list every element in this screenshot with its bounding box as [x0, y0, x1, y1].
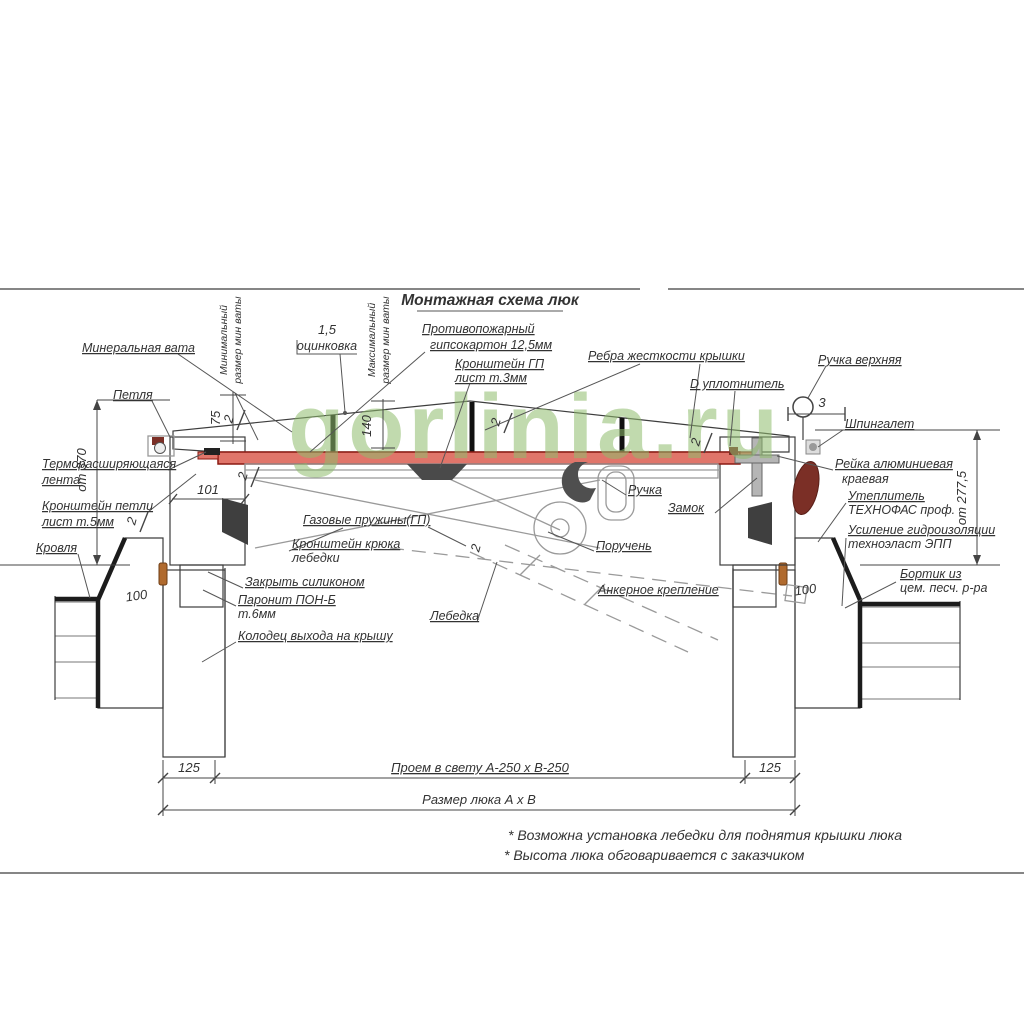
svg-text:цем. песч. р-ра: цем. песч. р-ра	[900, 581, 987, 595]
label-winch-bracket: Кронштейн крюка	[292, 537, 400, 551]
left-curb-membrane	[98, 538, 125, 708]
svg-text:размер мин ваты: размер мин ваты	[232, 296, 244, 385]
right-curb-membrane	[833, 538, 860, 708]
right-gravel-layer	[860, 607, 960, 643]
dim-140: 140	[359, 414, 374, 436]
label-lock: Замок	[668, 501, 705, 515]
dim-125-right: 125	[759, 760, 781, 775]
left-anchor-pin	[159, 563, 167, 585]
svg-text:2: 2	[123, 515, 140, 528]
hatch-installation-drawing: gorlinia.ru от 370 от 277,5 75 140 101	[0, 0, 1024, 1024]
right-screed-layer	[860, 643, 960, 667]
left-gravel-layer	[55, 602, 98, 636]
label-roofing: Кровля	[36, 541, 77, 555]
svg-text:краевая: краевая	[842, 472, 889, 486]
svg-text:лента: лента	[41, 473, 80, 487]
label-handrail: Поручень	[596, 539, 652, 553]
notes: * Возможна установка лебедки для подняти…	[504, 827, 902, 863]
left-slab	[55, 662, 98, 698]
pulley	[534, 502, 586, 554]
dim-hatch-size: Размер люка А х В	[422, 792, 536, 807]
label-insulation: Утеплитель	[847, 489, 925, 503]
anchor-beam	[390, 548, 792, 596]
label-waterproofing: Усиление гидроизоляции	[847, 523, 995, 537]
note-2: * Высота люка обговаривается с заказчико…	[504, 847, 805, 863]
svg-text:т.6мм: т.6мм	[238, 607, 276, 621]
label-hinge: Петля	[113, 388, 153, 402]
left-curb	[98, 538, 163, 708]
grip-handle	[789, 459, 824, 517]
label-min-wool: Минимальный	[218, 305, 230, 375]
right-slab	[860, 667, 960, 699]
label-thermo-tape: Терморасширяющаяся	[42, 457, 177, 471]
label-handle-top: Ручка верхняя	[818, 353, 902, 367]
dim-clear-opening: Проем в свету А-250 х В-250	[391, 760, 569, 775]
label-rail: Рейка алюминиевая	[835, 457, 953, 471]
dim-100-right: 100	[794, 581, 818, 599]
svg-text:гипсокартон 12,5мм: гипсокартон 12,5мм	[430, 338, 552, 352]
svg-text:2: 2	[234, 470, 251, 483]
svg-text:ТЕХНОФАС проф.: ТЕХНОФАС проф.	[848, 503, 955, 517]
label-galvanized: оцинковка	[297, 339, 357, 353]
label-bracket-gp: Кронштейн ГП	[455, 357, 545, 371]
svg-text:размер мин ваты: размер мин ваты	[380, 296, 392, 385]
svg-text:лист т.3мм: лист т.3мм	[454, 371, 527, 385]
label-silicone: Закрыть силиконом	[245, 575, 365, 589]
label-hinge-bracket: Кронштейн петли	[42, 499, 153, 513]
dim-100-left: 100	[125, 587, 149, 605]
label-latch: Шпингалет	[845, 417, 914, 431]
right-frame-bracket	[748, 502, 772, 545]
right-frame-tongue	[733, 565, 776, 607]
label-fireproof: Противопожарный	[422, 322, 535, 336]
dim-125-left: 125	[178, 760, 200, 775]
label-max-wool: Максимальный	[366, 303, 378, 378]
label-mineral-wool: Минеральная вата	[82, 341, 195, 355]
svg-text:лист т.5мм: лист т.5мм	[41, 515, 114, 529]
label-handle: Ручка	[628, 483, 662, 497]
dim-3: 3	[818, 395, 826, 410]
dim-right-height: от 277,5	[954, 470, 969, 525]
svg-text:лебедки: лебедки	[291, 551, 340, 565]
svg-text:2: 2	[467, 542, 484, 555]
label-anchor: Анкерное крепление	[597, 583, 719, 597]
dim-101: 101	[197, 482, 219, 497]
ladder	[470, 552, 688, 652]
label-well: Колодец выхода на крышу	[238, 629, 393, 643]
right-curb	[795, 538, 860, 708]
left-well-wall	[163, 570, 225, 757]
label-paronite: Паронит ПОН-Б	[238, 593, 336, 607]
technical-drawing-page: gorlinia.ru от 370 от 277,5 75 140 101	[0, 0, 1024, 1024]
label-gas-springs: Газовые пружины(ГП)	[303, 513, 430, 527]
label-curb: Бортик из	[900, 567, 962, 581]
right-anchor-pin	[779, 563, 787, 585]
drawing-title: Монтажная схема люк	[401, 292, 580, 309]
left-frame-bracket	[222, 498, 248, 545]
label-ribs: Ребра жесткости крышки	[588, 349, 745, 363]
note-1: * Возможна установка лебедки для подняти…	[508, 827, 902, 843]
svg-text:техноэласт ЭПП: техноэласт ЭПП	[848, 537, 952, 551]
left-screed-layer	[55, 636, 98, 662]
label-winch: Лебедка	[429, 609, 479, 623]
left-frame-tongue	[180, 565, 223, 607]
label-galv-value: 1,5	[318, 322, 337, 337]
label-seal: D уплотнитель	[690, 377, 784, 391]
